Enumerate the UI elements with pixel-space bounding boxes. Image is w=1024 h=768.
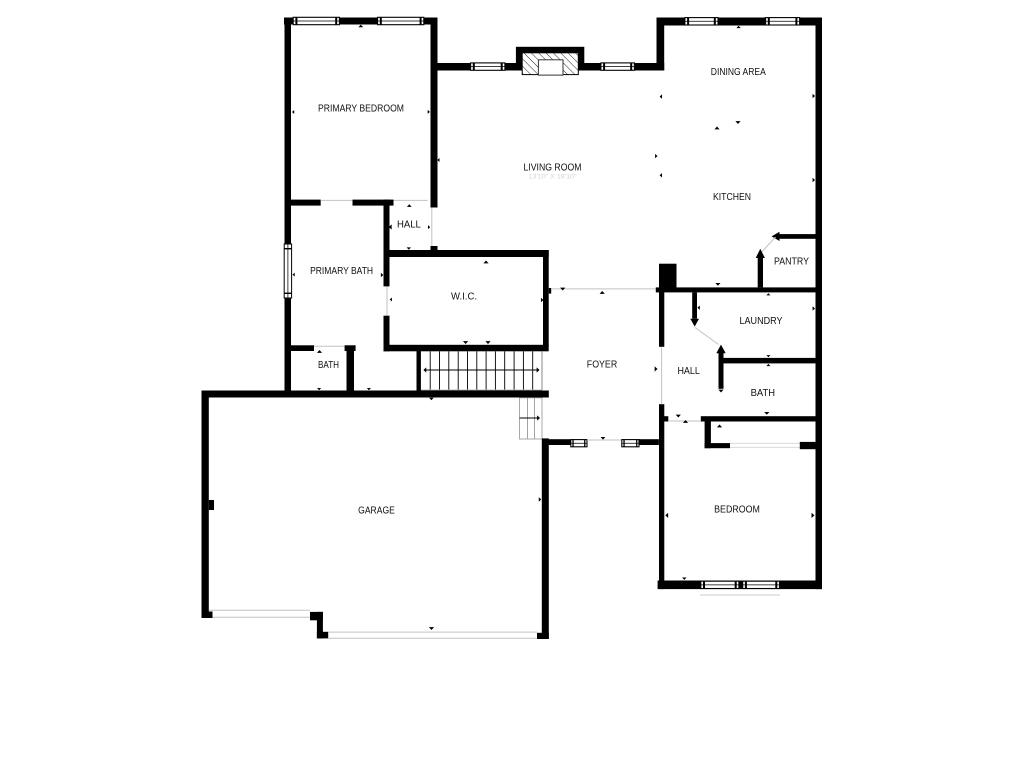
svg-text:HALL: HALL xyxy=(677,366,700,377)
svg-text:13'10" X 19'10": 13'10" X 19'10" xyxy=(529,174,577,180)
svg-text:LAUNDRY: LAUNDRY xyxy=(740,316,783,327)
svg-text:GARAGE: GARAGE xyxy=(358,505,395,516)
svg-text:DINING AREA: DINING AREA xyxy=(711,67,766,78)
svg-text:W.I.C.: W.I.C. xyxy=(451,292,477,303)
svg-text:BEDROOM: BEDROOM xyxy=(714,505,760,516)
svg-text:PANTRY: PANTRY xyxy=(774,257,809,268)
svg-text:KITCHEN: KITCHEN xyxy=(713,192,751,203)
svg-text:LIVING ROOM: LIVING ROOM xyxy=(524,163,582,174)
svg-text:BATH: BATH xyxy=(751,388,775,399)
svg-text:FOYER: FOYER xyxy=(587,359,617,370)
svg-text:PRIMARY BATH: PRIMARY BATH xyxy=(310,266,373,277)
svg-text:HALL: HALL xyxy=(397,220,421,231)
svg-text:BATH: BATH xyxy=(318,360,339,371)
svg-text:PRIMARY BEDROOM: PRIMARY BEDROOM xyxy=(318,104,404,115)
